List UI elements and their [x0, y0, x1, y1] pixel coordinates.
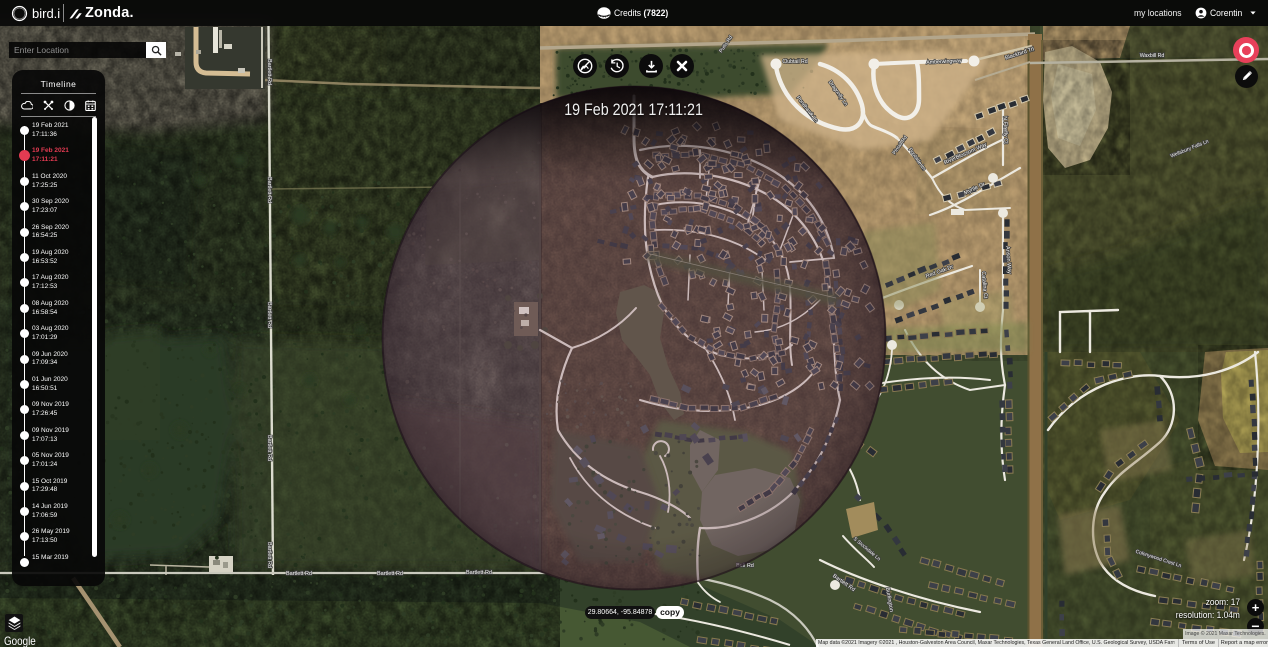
svg-text:Bartlett Rd: Bartlett Rd — [266, 177, 272, 203]
svg-text:N Firefly Ct: N Firefly Ct — [1002, 116, 1009, 144]
svg-text:Waxbill Rd: Waxbill Rd — [1140, 53, 1165, 59]
svg-text:Bartlett Rd: Bartlett Rd — [377, 571, 403, 577]
svg-text:Bartlett Rd: Bartlett Rd — [266, 435, 272, 461]
svg-text:Bartlett Rd: Bartlett Rd — [266, 542, 272, 568]
svg-text:Bartlett Rd: Bartlett Rd — [286, 571, 312, 577]
svg-text:Bartlett Rd: Bartlett Rd — [466, 570, 492, 576]
svg-text:Clubtail Rd: Clubtail Rd — [782, 59, 807, 65]
svg-text:Bartlett Rd: Bartlett Rd — [266, 59, 272, 85]
svg-text:Bartlett Rd: Bartlett Rd — [266, 302, 272, 328]
